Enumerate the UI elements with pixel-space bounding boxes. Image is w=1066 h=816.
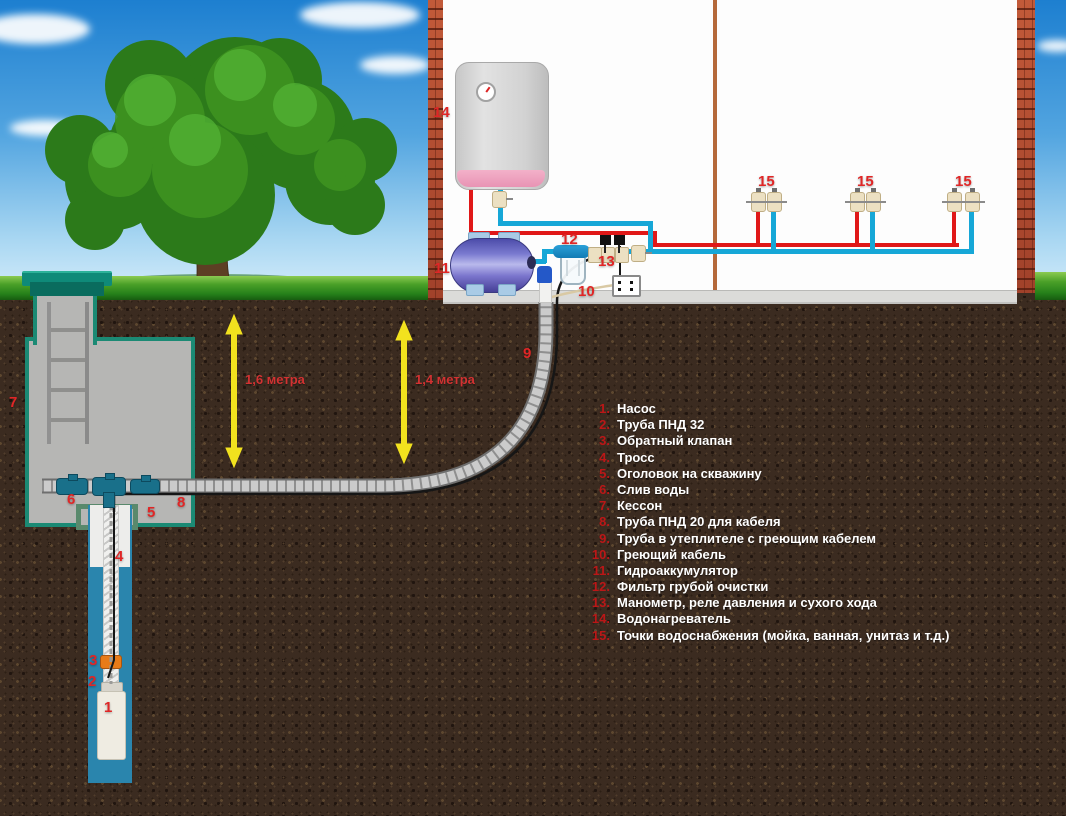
legend-item: 5.Оголовок на скважину xyxy=(590,466,950,482)
cold-tap-riser xyxy=(771,210,776,254)
check-valve xyxy=(100,655,122,669)
legend-number: 14. xyxy=(590,611,610,626)
marker-11: 11 xyxy=(434,261,450,276)
marker-10: 10 xyxy=(578,284,595,299)
cold-tap-riser xyxy=(870,210,875,254)
legend-item: 10.Греющий кабель xyxy=(590,547,950,563)
house-entry-pipe xyxy=(539,280,552,303)
caisson-ladder xyxy=(47,302,89,444)
legend-number: 7. xyxy=(590,498,610,513)
cold-water-tap xyxy=(965,192,980,212)
legend-item: 4.Тросс xyxy=(590,450,950,466)
marker-1: 1 xyxy=(104,700,112,715)
heater-inlet-valve xyxy=(492,191,507,208)
legend-label: Слив воды xyxy=(617,482,689,497)
legend-item: 13.Манометр, реле давления и сухого хода xyxy=(590,595,950,611)
legend-item: 7.Кессон xyxy=(590,498,950,514)
marker-3: 3 xyxy=(89,653,97,668)
legend-label: Труба ПНД 32 xyxy=(617,417,704,432)
grass-right xyxy=(1035,272,1066,300)
legend-item: 3.Обратный клапан xyxy=(590,433,950,449)
legend-item: 14.Водонагреватель xyxy=(590,611,950,627)
cloud xyxy=(1037,40,1066,52)
legend-number: 10. xyxy=(590,547,610,562)
marker-4: 4 xyxy=(115,549,123,564)
hydroaccumulator-tank xyxy=(450,238,534,293)
shutoff-valve xyxy=(631,245,646,262)
marker-8: 8 xyxy=(177,495,185,510)
cold-tap-riser xyxy=(969,210,974,254)
legend-number: 2. xyxy=(590,417,610,432)
electrical-outlet xyxy=(612,275,641,297)
legend-item: 15.Точки водоснабжения (мойка, ванная, у… xyxy=(590,628,950,644)
heater-thermometer-gauge xyxy=(476,82,496,102)
sky-right xyxy=(1035,0,1066,300)
caisson-cover-base xyxy=(30,282,104,296)
legend-item: 6.Слив воды xyxy=(590,482,950,498)
legend-number: 8. xyxy=(590,514,610,529)
legend-item: 12.Фильтр грубой очистки xyxy=(590,579,950,595)
entry-pipe-fitting xyxy=(537,266,552,283)
water-supply-diagram: 1 2 3 4 5 6 7 8 9 10 11 12 13 14 15 15 1… xyxy=(0,0,1066,816)
marker-13: 13 xyxy=(598,254,615,269)
hot-pipe-segment xyxy=(653,243,959,247)
pipe-coupling xyxy=(130,479,160,494)
legend-label: Оголовок на скважину xyxy=(617,466,762,481)
legend-label: Кессон xyxy=(617,498,662,513)
hot-pipe-segment xyxy=(469,186,473,235)
marker-9: 9 xyxy=(523,346,531,361)
marker-6: 6 xyxy=(67,492,75,507)
legend-number: 12. xyxy=(590,579,610,594)
legend: 1.Насос 2.Труба ПНД 32 3.Обратный клапан… xyxy=(590,401,950,644)
hot-tap-riser xyxy=(756,210,760,247)
tank-leg xyxy=(498,284,516,296)
marker-5: 5 xyxy=(147,505,155,520)
marker-12: 12 xyxy=(561,232,578,247)
cold-water-tap xyxy=(767,192,782,212)
legend-number: 6. xyxy=(590,482,610,497)
tank-leg xyxy=(466,284,484,296)
legend-label: Манометр, реле давления и сухого хода xyxy=(617,595,877,610)
legend-number: 3. xyxy=(590,433,610,448)
legend-item: 8.Труба ПНД 20 для кабеля xyxy=(590,514,950,530)
marker-15: 15 xyxy=(857,174,874,189)
legend-label: Гидроаккумулятор xyxy=(617,563,738,578)
hot-tap-riser xyxy=(855,210,859,247)
tree-illustration xyxy=(0,0,428,300)
tank-port xyxy=(527,256,536,269)
legend-item: 11.Гидроаккумулятор xyxy=(590,563,950,579)
legend-label: Греющий кабель xyxy=(617,547,726,562)
legend-number: 11. xyxy=(590,563,610,578)
legend-item: 9.Труба в утеплителе с греющим кабелем xyxy=(590,531,950,547)
house-floor xyxy=(443,290,1017,304)
legend-item: 1.Насос xyxy=(590,401,950,417)
legend-label: Насос xyxy=(617,401,656,416)
brick-column-right xyxy=(1017,0,1035,293)
manometer xyxy=(600,235,611,245)
legend-number: 15. xyxy=(590,628,610,643)
legend-label: Тросс xyxy=(617,450,655,465)
legend-label: Точки водоснабжения (мойка, ванная, унит… xyxy=(617,628,950,643)
marker-15: 15 xyxy=(955,174,972,189)
marker-7: 7 xyxy=(9,395,17,410)
legend-item: 2.Труба ПНД 32 xyxy=(590,417,950,433)
legend-number: 9. xyxy=(590,531,610,546)
hot-tap-riser xyxy=(952,210,956,247)
legend-label: Водонагреватель xyxy=(617,611,731,626)
marker-15: 15 xyxy=(758,174,775,189)
legend-number: 5. xyxy=(590,466,610,481)
legend-number: 13. xyxy=(590,595,610,610)
brick-column-left xyxy=(428,0,443,300)
marker-14: 14 xyxy=(433,105,450,120)
pressure-relay xyxy=(614,235,625,245)
legend-number: 4. xyxy=(590,450,610,465)
cold-water-tap xyxy=(866,192,881,212)
tee-stem xyxy=(103,492,115,508)
legend-number: 1. xyxy=(590,401,610,416)
coarse-filter-bowl xyxy=(560,258,586,285)
legend-label: Труба ПНД 20 для кабеля xyxy=(617,514,781,529)
marker-2: 2 xyxy=(88,674,96,689)
legend-label: Фильтр грубой очистки xyxy=(617,579,768,594)
legend-label: Обратный клапан xyxy=(617,433,732,448)
cold-pipe-segment xyxy=(498,221,653,226)
legend-label: Труба в утеплителе с греющим кабелем xyxy=(617,531,876,546)
sky-left xyxy=(0,0,428,300)
depth-label-right: 1,4 метра xyxy=(415,372,475,387)
water-heater-bottom xyxy=(457,170,545,187)
depth-label-left: 1,6 метра xyxy=(245,372,305,387)
